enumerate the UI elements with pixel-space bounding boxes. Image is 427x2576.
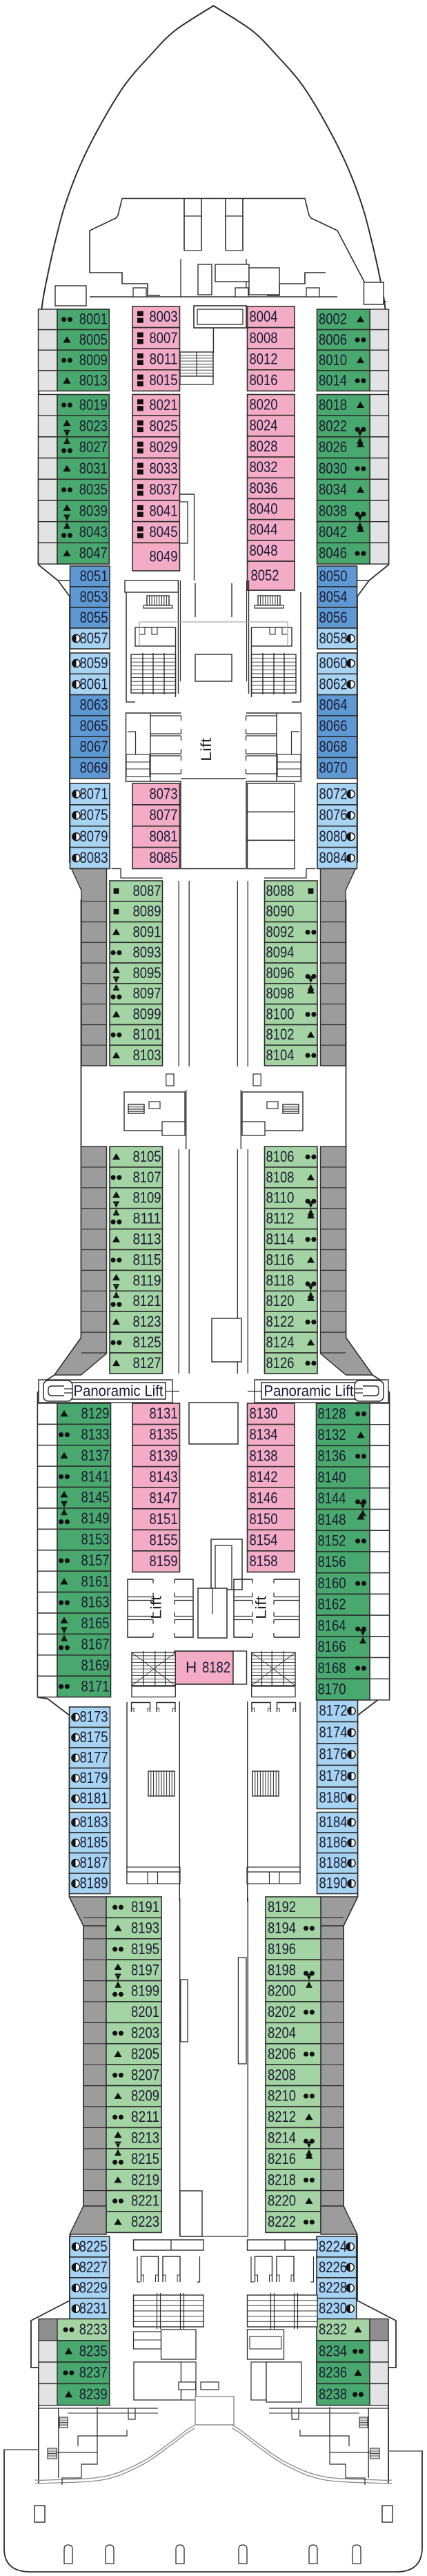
- svg-text:8130: 8130: [250, 1405, 278, 1422]
- svg-text:8050: 8050: [319, 567, 348, 585]
- svg-text:8212: 8212: [268, 2108, 296, 2125]
- svg-text:8208: 8208: [268, 2066, 296, 2083]
- svg-text:8048: 8048: [250, 542, 278, 559]
- svg-text:8183: 8183: [80, 1813, 108, 1831]
- svg-text:8239: 8239: [79, 2385, 108, 2403]
- svg-text:8151: 8151: [150, 1510, 178, 1528]
- svg-text:8153: 8153: [81, 1531, 110, 1548]
- svg-text:8069: 8069: [80, 759, 108, 776]
- svg-text:8083: 8083: [80, 849, 108, 866]
- svg-text:8031: 8031: [79, 460, 108, 477]
- svg-text:8181: 8181: [80, 1790, 108, 1807]
- svg-text:8010: 8010: [319, 351, 347, 369]
- svg-text:8171: 8171: [81, 1677, 110, 1695]
- svg-text:8160: 8160: [318, 1574, 346, 1592]
- svg-text:8011: 8011: [150, 350, 178, 367]
- svg-text:8108: 8108: [266, 1169, 295, 1186]
- svg-text:8051: 8051: [80, 567, 108, 585]
- svg-text:8133: 8133: [81, 1426, 110, 1443]
- svg-text:8030: 8030: [319, 460, 347, 477]
- svg-text:8139: 8139: [150, 1447, 178, 1464]
- svg-text:8053: 8053: [80, 588, 108, 605]
- svg-text:8189: 8189: [80, 1875, 108, 1892]
- svg-text:8215: 8215: [131, 2150, 159, 2167]
- svg-text:8061: 8061: [80, 675, 108, 692]
- svg-text:8046: 8046: [319, 545, 347, 562]
- svg-text:8140: 8140: [318, 1468, 346, 1485]
- svg-text:8175: 8175: [80, 1728, 108, 1746]
- svg-text:8149: 8149: [81, 1510, 110, 1527]
- svg-text:8167: 8167: [81, 1636, 110, 1653]
- svg-text:8045: 8045: [150, 523, 178, 540]
- svg-text:8099: 8099: [133, 1006, 161, 1023]
- svg-text:8165: 8165: [81, 1614, 110, 1632]
- svg-text:8154: 8154: [250, 1532, 278, 1549]
- svg-text:8162: 8162: [318, 1596, 346, 1613]
- svg-text:8038: 8038: [319, 502, 347, 519]
- svg-text:8006: 8006: [319, 331, 347, 348]
- svg-text:8203: 8203: [131, 2024, 159, 2042]
- svg-text:8159: 8159: [150, 1552, 178, 1570]
- svg-text:8013: 8013: [79, 372, 108, 389]
- svg-text:8028: 8028: [250, 438, 278, 455]
- svg-text:8119: 8119: [133, 1271, 161, 1289]
- svg-text:8197: 8197: [131, 1961, 159, 1978]
- svg-text:8026: 8026: [319, 438, 347, 456]
- svg-text:8132: 8132: [318, 1426, 346, 1443]
- svg-text:8052: 8052: [251, 567, 279, 584]
- svg-text:8142: 8142: [250, 1468, 278, 1485]
- svg-text:8124: 8124: [266, 1334, 295, 1351]
- svg-text:8020: 8020: [250, 396, 278, 413]
- svg-text:8218: 8218: [268, 2171, 296, 2188]
- svg-text:8229: 8229: [79, 2279, 108, 2296]
- svg-text:8118: 8118: [266, 1271, 295, 1289]
- svg-text:8185: 8185: [80, 1834, 108, 1851]
- svg-text:8161: 8161: [81, 1572, 110, 1590]
- svg-text:8022: 8022: [319, 418, 347, 435]
- svg-text:8066: 8066: [319, 717, 348, 734]
- svg-text:8058: 8058: [319, 630, 348, 647]
- svg-text:8141: 8141: [81, 1467, 110, 1485]
- svg-text:8225: 8225: [79, 2238, 108, 2255]
- svg-text:8238: 8238: [319, 2385, 347, 2403]
- svg-text:8221: 8221: [131, 2192, 159, 2209]
- svg-text:8144: 8144: [318, 1490, 346, 1507]
- svg-text:8135: 8135: [150, 1426, 178, 1443]
- svg-text:8152: 8152: [318, 1532, 346, 1550]
- svg-text:8033: 8033: [150, 460, 178, 477]
- svg-text:8138: 8138: [250, 1447, 278, 1464]
- svg-text:8039: 8039: [79, 502, 108, 519]
- svg-text:8057: 8057: [80, 630, 108, 647]
- svg-text:8224: 8224: [319, 2238, 347, 2255]
- svg-text:8205: 8205: [131, 2045, 159, 2062]
- svg-text:8001: 8001: [79, 311, 108, 328]
- svg-text:8085: 8085: [150, 849, 178, 866]
- svg-text:8169: 8169: [81, 1657, 110, 1674]
- svg-text:8077: 8077: [150, 806, 178, 823]
- svg-text:8109: 8109: [133, 1189, 161, 1207]
- svg-text:8009: 8009: [79, 351, 108, 369]
- svg-text:8206: 8206: [268, 2045, 296, 2062]
- svg-text:8056: 8056: [319, 609, 348, 626]
- svg-text:8198: 8198: [268, 1961, 296, 1978]
- svg-text:8016: 8016: [250, 371, 278, 389]
- svg-text:8037: 8037: [150, 481, 178, 498]
- svg-text:8228: 8228: [319, 2279, 347, 2296]
- svg-text:8113: 8113: [133, 1231, 161, 1248]
- svg-text:8092: 8092: [266, 923, 295, 940]
- svg-text:8060: 8060: [319, 654, 348, 672]
- svg-text:8015: 8015: [150, 371, 178, 389]
- svg-text:Panoramic Lift: Panoramic Lift: [74, 1383, 163, 1400]
- svg-text:8098: 8098: [266, 985, 295, 1002]
- svg-text:8067: 8067: [80, 738, 108, 755]
- svg-text:8202: 8202: [268, 2003, 296, 2020]
- svg-text:8063: 8063: [80, 696, 108, 714]
- svg-text:8049: 8049: [150, 548, 178, 565]
- svg-text:8029: 8029: [150, 438, 178, 456]
- svg-text:8210: 8210: [268, 2087, 296, 2105]
- svg-text:8137: 8137: [81, 1447, 110, 1464]
- svg-text:8127: 8127: [133, 1354, 161, 1372]
- svg-text:8121: 8121: [133, 1292, 161, 1309]
- svg-text:8032: 8032: [250, 458, 278, 476]
- svg-text:8186: 8186: [319, 1834, 348, 1851]
- svg-text:8072: 8072: [319, 785, 348, 802]
- svg-text:8062: 8062: [319, 675, 348, 692]
- svg-text:8147: 8147: [150, 1489, 178, 1506]
- svg-text:8041: 8041: [150, 502, 178, 519]
- svg-text:8231: 8231: [79, 2300, 108, 2317]
- svg-text:8004: 8004: [250, 308, 278, 325]
- svg-text:8195: 8195: [131, 1940, 159, 1958]
- svg-text:8220: 8220: [268, 2192, 296, 2209]
- svg-text:8207: 8207: [131, 2066, 159, 2083]
- svg-text:8055: 8055: [80, 609, 108, 626]
- svg-text:8204: 8204: [268, 2024, 296, 2042]
- svg-text:8164: 8164: [318, 1617, 346, 1634]
- svg-text:8047: 8047: [79, 545, 108, 562]
- svg-text:8106: 8106: [266, 1148, 295, 1165]
- svg-text:8044: 8044: [250, 521, 278, 538]
- svg-text:8021: 8021: [150, 396, 178, 413]
- svg-text:8237: 8237: [79, 2364, 108, 2381]
- svg-text:8097: 8097: [133, 985, 161, 1002]
- svg-text:8200: 8200: [268, 1982, 296, 2000]
- svg-text:8176: 8176: [319, 1746, 348, 1763]
- svg-text:8178: 8178: [319, 1767, 348, 1784]
- svg-text:8226: 8226: [319, 2258, 347, 2276]
- svg-text:8095: 8095: [133, 964, 161, 982]
- svg-text:8076: 8076: [319, 806, 348, 823]
- svg-text:8019: 8019: [79, 396, 108, 413]
- svg-text:8125: 8125: [133, 1334, 161, 1351]
- svg-text:8173: 8173: [80, 1708, 108, 1726]
- svg-text:8134: 8134: [250, 1426, 278, 1443]
- svg-text:8104: 8104: [266, 1046, 295, 1064]
- svg-text:8131: 8131: [150, 1405, 178, 1422]
- svg-text:8201: 8201: [131, 2003, 159, 2020]
- svg-text:8079: 8079: [80, 828, 108, 845]
- svg-text:8018: 8018: [319, 396, 347, 413]
- svg-text:8232: 8232: [319, 2321, 347, 2338]
- svg-text:8081: 8081: [150, 828, 178, 845]
- svg-text:8216: 8216: [268, 2150, 296, 2167]
- svg-text:8211: 8211: [131, 2108, 159, 2125]
- svg-text:8043: 8043: [79, 523, 108, 540]
- svg-text:8040: 8040: [250, 500, 278, 518]
- svg-text:8191: 8191: [131, 1898, 159, 1915]
- svg-text:8227: 8227: [79, 2258, 108, 2276]
- svg-text:8093: 8093: [133, 944, 161, 961]
- svg-text:Panoramic Lift: Panoramic Lift: [264, 1383, 354, 1400]
- svg-text:8008: 8008: [250, 329, 278, 347]
- svg-text:8190: 8190: [319, 1875, 348, 1892]
- svg-text:8157: 8157: [81, 1552, 110, 1569]
- svg-text:8068: 8068: [319, 738, 348, 755]
- svg-text:8101: 8101: [133, 1026, 161, 1043]
- svg-text:8170: 8170: [318, 1681, 346, 1698]
- svg-text:8034: 8034: [319, 481, 347, 498]
- svg-text:8115: 8115: [133, 1251, 161, 1268]
- svg-text:8102: 8102: [266, 1026, 295, 1043]
- svg-text:8172: 8172: [319, 1702, 348, 1719]
- svg-text:8084: 8084: [319, 849, 348, 866]
- svg-text:8012: 8012: [250, 350, 278, 367]
- svg-text:8091: 8091: [133, 923, 161, 940]
- svg-text:8128: 8128: [318, 1405, 346, 1422]
- svg-text:8089: 8089: [133, 903, 161, 920]
- svg-text:8075: 8075: [80, 806, 108, 823]
- svg-text:8230: 8230: [319, 2300, 347, 2317]
- svg-text:8143: 8143: [150, 1468, 178, 1485]
- svg-text:8234: 8234: [319, 2342, 347, 2359]
- svg-text:8194: 8194: [268, 1920, 296, 1937]
- svg-text:8148: 8148: [318, 1511, 346, 1528]
- svg-text:8163: 8163: [81, 1594, 110, 1611]
- svg-text:8073: 8073: [150, 785, 178, 802]
- svg-text:8150: 8150: [250, 1510, 278, 1528]
- svg-text:8214: 8214: [268, 2129, 296, 2147]
- svg-text:8179: 8179: [80, 1769, 108, 1786]
- svg-text:8236: 8236: [319, 2364, 347, 2381]
- svg-text:Lift: Lift: [149, 1596, 165, 1619]
- svg-text:8014: 8014: [319, 372, 347, 389]
- svg-text:8111: 8111: [133, 1210, 161, 1227]
- svg-text:8110: 8110: [266, 1189, 295, 1207]
- svg-text:8126: 8126: [266, 1354, 295, 1372]
- svg-text:8166: 8166: [318, 1638, 346, 1655]
- svg-text:8059: 8059: [80, 654, 108, 672]
- svg-text:8193: 8193: [131, 1920, 159, 1937]
- svg-text:8112: 8112: [266, 1210, 295, 1227]
- svg-text:8196: 8196: [268, 1940, 296, 1958]
- svg-text:8116: 8116: [266, 1251, 295, 1268]
- svg-text:8145: 8145: [81, 1489, 110, 1506]
- svg-text:8177: 8177: [80, 1749, 108, 1766]
- svg-text:8199: 8199: [131, 1982, 159, 2000]
- svg-text:8100: 8100: [266, 1006, 295, 1023]
- svg-text:8094: 8094: [266, 944, 295, 961]
- svg-text:8129: 8129: [81, 1405, 110, 1422]
- svg-text:8192: 8192: [268, 1898, 296, 1915]
- svg-text:8065: 8065: [80, 717, 108, 734]
- svg-text:8002: 8002: [319, 311, 347, 328]
- svg-text:8182: 8182: [202, 1659, 230, 1676]
- svg-text:8233: 8233: [79, 2321, 108, 2338]
- svg-text:8071: 8071: [80, 785, 108, 802]
- svg-text:8123: 8123: [133, 1313, 161, 1330]
- svg-text:8122: 8122: [266, 1313, 295, 1330]
- svg-text:8090: 8090: [266, 903, 295, 920]
- svg-text:8155: 8155: [150, 1532, 178, 1549]
- svg-text:H: H: [186, 1659, 197, 1676]
- svg-text:8146: 8146: [250, 1489, 278, 1506]
- svg-text:8222: 8222: [268, 2213, 296, 2230]
- svg-text:8235: 8235: [79, 2342, 108, 2359]
- svg-text:8003: 8003: [150, 308, 178, 325]
- svg-text:8005: 8005: [79, 331, 108, 348]
- svg-text:8219: 8219: [131, 2171, 159, 2188]
- svg-text:8080: 8080: [319, 828, 348, 845]
- svg-text:8105: 8105: [133, 1148, 161, 1165]
- svg-text:8156: 8156: [318, 1553, 346, 1570]
- svg-text:8096: 8096: [266, 964, 295, 982]
- svg-text:8158: 8158: [250, 1552, 278, 1570]
- svg-text:Lift: Lift: [199, 738, 215, 761]
- svg-text:8023: 8023: [79, 418, 108, 435]
- svg-text:8088: 8088: [266, 882, 295, 899]
- svg-text:8136: 8136: [318, 1447, 346, 1465]
- svg-text:8025: 8025: [150, 418, 178, 435]
- svg-text:8036: 8036: [250, 479, 278, 496]
- svg-text:8070: 8070: [319, 759, 348, 776]
- svg-text:8120: 8120: [266, 1292, 295, 1309]
- svg-text:8114: 8114: [266, 1231, 295, 1248]
- svg-text:8184: 8184: [319, 1813, 348, 1831]
- svg-text:8209: 8209: [131, 2087, 159, 2105]
- svg-text:8007: 8007: [150, 329, 178, 347]
- svg-text:8107: 8107: [133, 1169, 161, 1186]
- svg-text:8042: 8042: [319, 523, 347, 540]
- svg-text:8174: 8174: [319, 1724, 348, 1741]
- svg-text:8027: 8027: [79, 438, 108, 456]
- svg-text:8213: 8213: [131, 2129, 159, 2147]
- svg-text:8187: 8187: [80, 1854, 108, 1871]
- svg-text:8087: 8087: [133, 882, 161, 899]
- svg-text:8064: 8064: [319, 696, 348, 714]
- svg-text:8103: 8103: [133, 1046, 161, 1064]
- svg-text:Lift: Lift: [254, 1596, 270, 1619]
- svg-text:8223: 8223: [131, 2213, 159, 2230]
- svg-text:8168: 8168: [318, 1659, 346, 1677]
- svg-text:8180: 8180: [319, 1789, 348, 1806]
- svg-text:8035: 8035: [79, 481, 108, 498]
- svg-text:8188: 8188: [319, 1854, 348, 1871]
- svg-text:8024: 8024: [250, 417, 278, 434]
- svg-text:8054: 8054: [319, 588, 348, 605]
